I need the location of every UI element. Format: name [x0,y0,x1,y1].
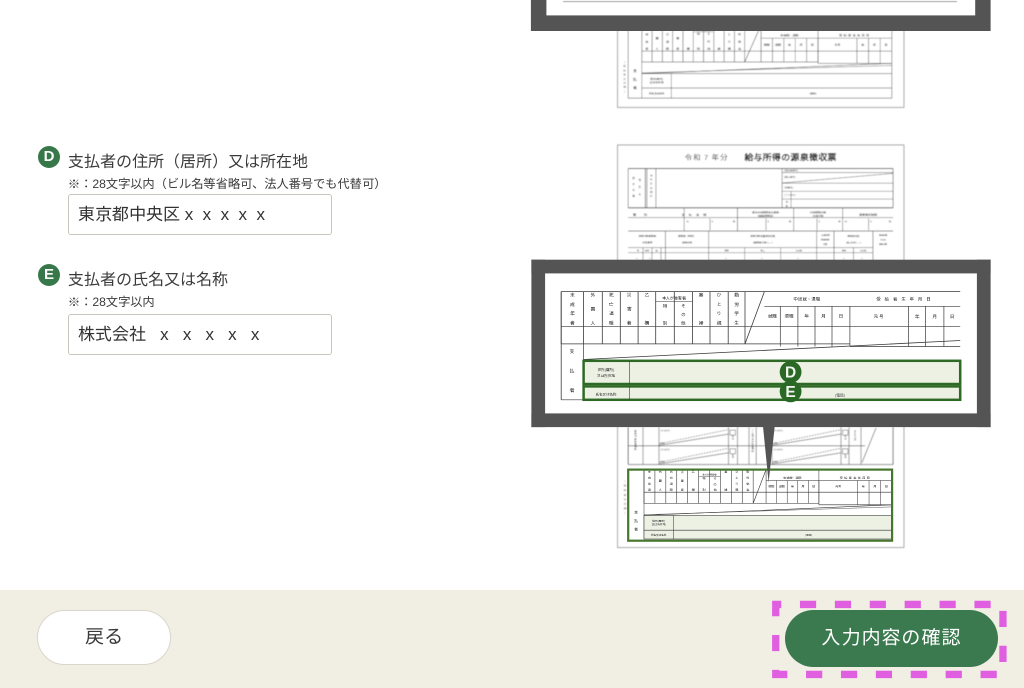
svg-text:人: 人 [591,321,596,326]
svg-text:支: 支 [637,179,641,182]
svg-text:令和 7 年分: 令和 7 年分 [685,153,728,162]
svg-text:就職: 就職 [768,314,777,319]
svg-text:職: 職 [608,321,614,326]
svg-text:そ: そ [707,32,710,36]
svg-text:職: 職 [665,47,669,51]
svg-text:住所(居所): 住所(居所) [597,367,615,372]
svg-text:支: 支 [570,349,575,355]
svg-text:16歳未満: 16歳未満 [821,234,830,237]
svg-text:成: 成 [569,302,575,307]
svg-text:付: 付 [622,81,626,85]
svg-text:月: 月 [872,43,876,47]
svg-text:族: 族 [751,450,754,453]
svg-text:非居住者: 非居住者 [878,234,887,237]
svg-text:中途就・退職: 中途就・退職 [783,476,801,480]
svg-text:日: 日 [885,43,888,47]
svg-text:と: と [728,33,731,37]
svg-text:月: 月 [798,43,802,47]
svg-text:特定: 特定 [724,250,730,253]
svg-text:の合計額: の合計額 [813,214,824,218]
svg-text:(フリガナ): (フリガナ) [774,430,784,433]
svg-text:(受給者番号): (受給者番号) [784,169,799,173]
svg-text:支払金額: 支払金額 [681,213,711,217]
svg-text:災: 災 [627,292,632,297]
svg-text:親: 親 [717,321,722,326]
svg-text:退職: 退職 [774,43,781,47]
svg-text:用: 用 [623,508,627,511]
svg-text:者: 者 [624,493,627,497]
svg-text:（調整控除後）: （調整控除後） [756,214,775,218]
svg-text:親族の数: 親族の数 [878,243,887,246]
svg-text:外: 外 [590,292,596,297]
svg-text:学: 学 [746,482,749,486]
svg-text:本人が障害者: 本人が障害者 [662,295,686,300]
svg-text:国: 国 [659,479,662,483]
svg-text:D: D [785,365,796,382]
svg-text:労: 労 [746,476,749,480]
svg-text:人: 人 [842,257,845,260]
svg-text:り: り [728,40,731,44]
svg-text:付: 付 [623,502,627,506]
svg-text:(電話): (電話) [805,533,812,537]
svg-text:人: 人 [635,257,638,260]
svg-text:者: 者 [645,47,648,51]
svg-text:住: 住 [649,174,653,178]
svg-text:給: 給 [623,488,627,492]
svg-text:欄: 欄 [644,321,650,326]
svg-text:亡: 亡 [669,476,673,480]
svg-text:氏名又は名称: 氏名又は名称 [650,533,667,537]
svg-text:ひ: ひ [717,292,722,297]
svg-text:元号: 元号 [874,314,885,319]
svg-text:種別: 種別 [632,212,655,217]
svg-text:就職: 就職 [764,43,770,47]
svg-text:他: 他 [680,321,686,326]
svg-text:所得控除の額: 所得控除の額 [809,210,826,214]
svg-text:の: の [713,482,716,486]
svg-text:その他: その他 [794,250,802,253]
svg-text:労: 労 [738,33,741,37]
svg-text:交: 交 [622,78,626,81]
svg-text:国: 国 [591,306,596,311]
svg-text:受給者生年月日: 受給者生年月日 [840,476,872,480]
svg-text:学: 学 [738,40,741,44]
svg-text:の数: の数 [823,243,827,246]
svg-text:): ) [624,89,625,93]
svg-text:氏名: 氏名 [773,461,778,464]
svg-text:月: 月 [821,314,825,319]
svg-text:受給者生年月日: 受給者生年月日 [839,34,871,38]
svg-text:控除の額: 控除の額 [681,240,693,244]
svg-text:給与所得の源泉徴収票: 給与所得の源泉徴収票 [744,151,837,162]
svg-text:年: 年 [570,310,575,316]
svg-text:源泉徴収税額: 源泉徴収税額 [859,213,878,217]
svg-text:け: け [632,183,635,186]
svg-text:学: 学 [734,311,739,316]
svg-text:日: 日 [812,485,815,489]
svg-text:(電話): (電話) [810,92,817,96]
svg-text:受: 受 [623,484,627,488]
svg-text:氏名: 氏名 [773,442,778,445]
svg-text:(フリガナ): (フリガナ) [784,193,796,197]
svg-text:払: 払 [632,78,637,82]
svg-text:(: ( [625,479,626,483]
svg-text:（配偶者を除く。）: （配偶者を除く。） [751,240,774,244]
svg-text:者: 者 [648,488,651,492]
svg-text:交: 交 [623,498,627,501]
svg-text:者: 者 [633,86,637,90]
svg-text:給与所得控除後の金額: 給与所得控除後の金額 [751,210,779,214]
svg-text:(フリガナ): (フリガナ) [661,448,671,451]
svg-text:又は所在地: 又は所在地 [596,373,615,378]
svg-text:年: 年 [861,485,865,489]
svg-text:(役職名): (役職名) [784,185,794,189]
svg-text:の有無等: の有無等 [642,240,653,244]
svg-text:亡: 亡 [665,33,669,37]
svg-text:未: 未 [570,292,575,297]
svg-text:(: ( [624,60,625,64]
svg-text:払: 払 [633,519,638,523]
svg-text:死: 死 [609,292,614,297]
svg-text:氏名: 氏名 [660,461,665,464]
svg-text:他: 他 [712,488,716,492]
svg-text:災: 災 [681,470,684,474]
svg-text:給: 給 [622,68,626,72]
svg-text:労: 労 [734,302,739,307]
svg-text:配偶者（特別）: 配偶者（特別） [678,234,696,238]
svg-text:婦: 婦 [723,488,727,492]
svg-text:所: 所 [649,178,653,182]
svg-text:婦: 婦 [716,47,720,51]
svg-text:の: の [707,39,710,43]
svg-text:者: 者 [570,321,575,326]
svg-text:日: 日 [811,43,814,47]
svg-text:年: 年 [644,40,648,44]
svg-text:そ: そ [681,303,685,308]
svg-text:受: 受 [631,176,635,180]
svg-text:人: 人 [648,257,651,260]
svg-text:乙: 乙 [645,292,650,297]
svg-text:用: 用 [622,86,626,89]
svg-text:寡: 寡 [724,470,727,474]
svg-text:就職: 就職 [768,485,774,489]
svg-text:他: 他 [706,47,710,51]
svg-text:特: 特 [702,477,706,481]
svg-text:月: 月 [872,485,876,489]
svg-text:者: 者 [676,47,679,51]
svg-text:控除対象扶養親族の数: 控除対象扶養親族の数 [749,234,776,238]
svg-text:り: り [717,310,722,316]
svg-text:人: 人 [724,257,727,260]
svg-text:者: 者 [681,488,684,492]
svg-text:欄: 欄 [686,47,690,51]
svg-text:そ: そ [713,477,716,481]
svg-text:払: 払 [570,369,575,375]
svg-text:): ) [625,511,626,515]
svg-text:(電話): (電話) [835,393,846,398]
svg-text:寡: 寡 [699,292,704,297]
svg-text:年: 年 [860,43,864,47]
svg-text:乙: 乙 [692,470,695,474]
svg-text:者: 者 [627,321,632,326]
svg-text:国: 国 [656,36,659,40]
svg-text:婦: 婦 [699,320,704,326]
svg-text:勤: 勤 [746,470,749,474]
svg-text:(フリガナ): (フリガナ) [774,448,784,451]
svg-text:(フリガナ): (フリガナ) [661,430,671,433]
svg-text:所: 所 [649,194,653,198]
svg-text:特: 特 [696,32,700,36]
svg-text:人: 人 [860,257,863,260]
svg-text:氏名: 氏名 [660,442,665,445]
svg-text:又は所在地: 又は所在地 [651,522,666,526]
svg-text:年: 年 [790,485,794,489]
svg-text:生: 生 [734,321,739,326]
svg-text:退: 退 [609,310,614,316]
svg-text:親: 親 [734,488,738,492]
svg-text:支: 支 [632,69,637,73]
svg-text:中途就・退職: 中途就・退職 [781,34,799,38]
svg-text:退職: 退職 [784,314,794,319]
svg-text:職: 職 [669,488,673,492]
svg-text:退職: 退職 [778,485,785,489]
svg-text:受給者生年月日: 受給者生年月日 [876,296,934,302]
svg-text:生: 生 [746,488,749,492]
svg-text:年: 年 [915,314,920,319]
svg-text:害: 害 [627,306,632,311]
svg-text:特: 特 [663,303,668,308]
svg-text:氏名又は名称: 氏名又は名称 [595,391,617,396]
svg-text:生: 生 [738,47,741,51]
svg-text:E: E [785,384,795,401]
svg-text:別: 別 [696,47,700,51]
svg-text:る: る [632,188,635,192]
svg-text:(個人番号): (個人番号) [784,175,796,179]
svg-text:又は所在地: 又は所在地 [649,80,664,84]
svg-text:欄: 欄 [691,488,695,492]
svg-text:亡: 亡 [608,302,614,307]
svg-text:氏名又は名称: 氏名又は名称 [648,92,665,96]
svg-text:人: 人 [796,257,799,260]
svg-text:扶養親族: 扶養親族 [820,239,830,242]
svg-text:者: 者 [632,194,635,198]
svg-text:中途就・退職: 中途就・退職 [794,297,821,302]
svg-text:り: り [735,482,738,486]
svg-text:元号: 元号 [834,43,840,47]
svg-text:控除対象配偶者: 控除対象配偶者 [638,234,657,238]
svg-text:日: 日 [885,485,888,489]
svg-text:年: 年 [647,482,651,486]
svg-text:氏: 氏 [785,200,789,204]
svg-text:成: 成 [644,33,648,37]
svg-text:又: 又 [649,183,653,186]
svg-text:ひ: ひ [735,470,738,474]
svg-text:支: 支 [633,510,638,514]
svg-text:月: 月 [801,485,805,489]
svg-text:年: 年 [787,43,791,47]
svg-text:者: 者 [623,73,626,77]
svg-text:（本人を除く。）: （本人を除く。） [845,241,863,244]
svg-text:障害者の数: 障害者の数 [848,234,861,238]
svg-text:その他: その他 [859,250,867,253]
svg-text:者: 者 [570,388,575,394]
svg-text:死: 死 [670,470,673,474]
svg-text:年: 年 [804,314,809,319]
svg-text:を: を [638,192,641,196]
svg-text:と: と [735,476,738,480]
svg-text:受: 受 [622,64,626,68]
svg-text:月: 月 [933,314,937,319]
svg-text:人: 人 [760,257,763,260]
svg-text:成: 成 [647,476,651,480]
svg-text:者: 者 [634,527,638,531]
svg-text:本人が障害者: 本人が障害者 [701,472,717,476]
svg-text:払: 払 [637,185,641,189]
svg-text:勤: 勤 [734,292,739,297]
svg-text:別: 別 [702,488,706,492]
svg-text:と: と [717,302,722,307]
svg-text:別: 別 [663,321,667,326]
svg-text:日: 日 [839,314,844,319]
svg-text:の: の [681,312,685,317]
svg-text:親: 親 [727,47,731,51]
svg-text:居: 居 [649,191,653,194]
svg-text:日: 日 [950,314,955,319]
svg-text:元号: 元号 [835,485,841,489]
